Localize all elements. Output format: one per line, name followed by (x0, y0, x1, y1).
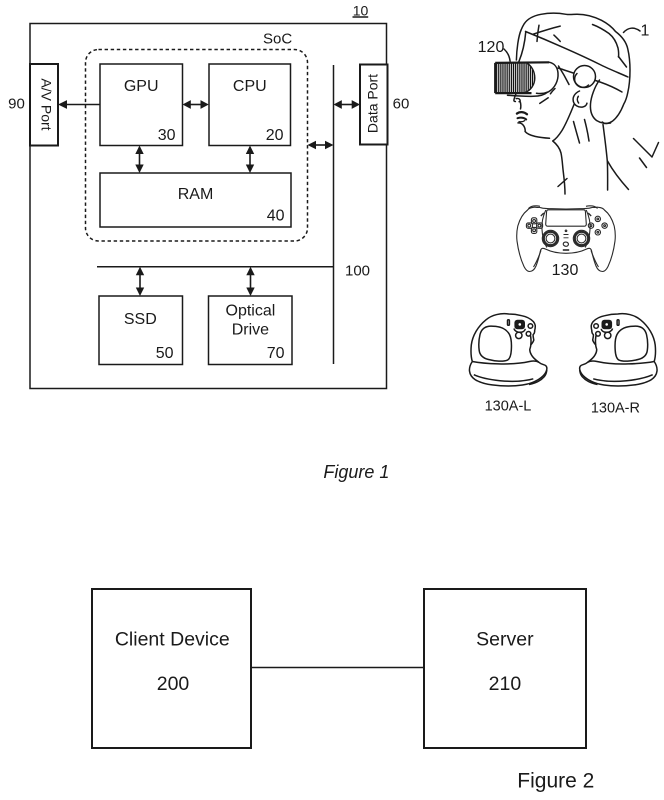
svg-text:CPU: CPU (233, 78, 267, 95)
svg-text:A/V Port: A/V Port (38, 78, 54, 130)
svg-text:20: 20 (266, 127, 284, 144)
svg-text:70: 70 (267, 345, 285, 362)
svg-text:90: 90 (8, 96, 25, 113)
svg-text:30: 30 (158, 127, 176, 144)
svg-text:RAM: RAM (178, 186, 214, 203)
svg-text:200: 200 (157, 673, 190, 695)
svg-text:SoC: SoC (263, 30, 292, 47)
svg-text:130A-R: 130A-R (591, 401, 640, 417)
svg-text:10: 10 (353, 3, 369, 19)
svg-text:GPU: GPU (124, 78, 159, 95)
svg-text:100: 100 (345, 262, 370, 279)
svg-text:130: 130 (552, 262, 579, 279)
svg-text:Server: Server (476, 629, 534, 651)
svg-text:SSD: SSD (124, 311, 157, 328)
svg-text:Figure 1: Figure 1 (323, 462, 389, 482)
svg-text:1: 1 (641, 23, 650, 40)
svg-text:Optical: Optical (226, 303, 276, 320)
svg-text:60: 60 (393, 96, 410, 113)
svg-text:40: 40 (267, 208, 285, 225)
svg-text:130A-L: 130A-L (485, 399, 532, 415)
svg-text:120: 120 (478, 39, 505, 56)
svg-text:Drive: Drive (232, 322, 269, 339)
svg-text:Data Port: Data Port (365, 74, 381, 133)
svg-text:Client Device: Client Device (115, 629, 230, 651)
svg-text:210: 210 (489, 673, 522, 695)
svg-text:50: 50 (156, 345, 174, 362)
svg-text:Figure 2: Figure 2 (517, 770, 594, 793)
